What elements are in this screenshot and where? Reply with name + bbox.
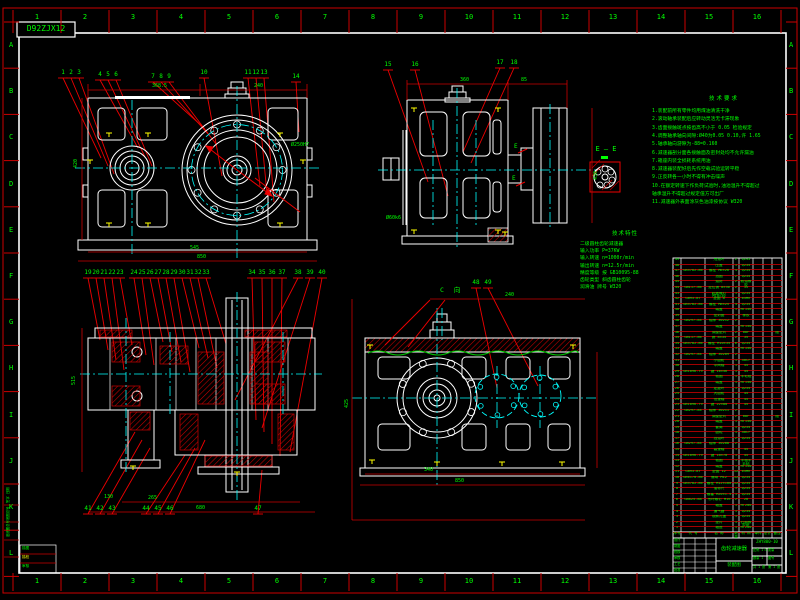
balloon-25: 25: [138, 270, 145, 276]
balloon-21: 21: [100, 270, 107, 276]
dim-label: 240: [505, 293, 514, 298]
zone-col-bottom: 16: [753, 578, 761, 585]
rear-dashed-circles: [475, 374, 561, 418]
balloon-47: 47: [254, 506, 261, 512]
titleblock-cell: 比例 1:5: [753, 549, 767, 552]
balloon-1: 1: [61, 70, 65, 76]
zone-row-right: D: [789, 181, 793, 188]
zone-col-top: 10: [465, 14, 473, 21]
dim-label: Ø250H7: [291, 143, 309, 148]
cad-sheet: D92ZJX12 技术要求 1.装配前所有零件均用煤油清洗干净2.滚动轴承装配后…: [0, 0, 800, 600]
note-line: 轴承温升不得超过规定值方可出厂: [652, 193, 724, 198]
spec-line: 润滑油 牌号 W320: [580, 286, 621, 291]
balloon-30: 30: [178, 270, 185, 276]
dim-label: Ø60k6: [386, 216, 401, 221]
balloon-39: 39: [306, 270, 313, 276]
zone-col-top: 5: [227, 14, 231, 21]
leader-line: [388, 70, 428, 182]
bolt-circle: [522, 385, 527, 390]
side-view: [383, 86, 567, 244]
title-block-type: 装配图: [716, 564, 752, 569]
titleblock-cell: 第 1 张: [768, 566, 780, 569]
balloon-13: 13: [260, 70, 267, 76]
titleblock-sig: 制图: [674, 545, 680, 548]
zone-row-left: D: [9, 181, 13, 188]
bom-header-cell: 备注: [772, 532, 782, 538]
leader-line: [100, 440, 142, 514]
note-line: 3.齿面接触斑点按齿高不小于 0.05 检验规定: [652, 127, 752, 132]
bom-header-cell: 代 号: [681, 532, 705, 538]
zone-col-bottom: 6: [275, 578, 279, 585]
notes-title: 技术要求: [650, 97, 798, 103]
zone-row-left: F: [9, 273, 13, 280]
dim-label: 515: [72, 376, 77, 385]
bolt-circle: [419, 429, 426, 436]
rear-centerlines: [352, 308, 596, 485]
zone-col-top: 12: [561, 14, 569, 21]
front-view: [78, 82, 317, 250]
leader-line: [96, 278, 108, 350]
dim-label: 425: [345, 399, 350, 408]
zone-col-top: 8: [371, 14, 375, 21]
leader-line: [108, 80, 145, 157]
bom-header-cell: 总计: [763, 532, 772, 538]
bolt-circle: [256, 206, 263, 213]
bolt-circle: [194, 189, 201, 196]
zone-col-bottom: 10: [465, 578, 473, 585]
zone-row-left: B: [9, 88, 13, 95]
balloon-49: 49: [484, 280, 491, 286]
balloon-28: 28: [162, 270, 169, 276]
balloon-41: 41: [84, 506, 91, 512]
titleblock-cell: 质量: [768, 549, 774, 552]
zone-col-top: 16: [753, 14, 761, 21]
titleblock-sig: 审核: [674, 557, 680, 560]
leader-line: [71, 78, 108, 166]
bom-header-row: 序号代 号名 称数量材 料单件总计备注: [673, 532, 782, 538]
balloon-5: 5: [106, 72, 110, 78]
bom-header-cell: 材 料: [739, 532, 753, 538]
section-hatch: [100, 330, 294, 466]
zone-col-bottom: 2: [83, 578, 87, 585]
zone-row-right: A: [789, 42, 793, 49]
balloon-4: 4: [98, 72, 102, 78]
e-mark-2: E: [512, 176, 516, 182]
bolt-circle: [478, 403, 483, 408]
e-mark-1: E: [514, 144, 518, 150]
dim-label: 680: [196, 506, 205, 511]
dimension-lines: [78, 80, 597, 520]
zone-col-top: 6: [275, 14, 279, 21]
dim-label: 85: [521, 78, 527, 83]
zone-row-right: B: [789, 88, 793, 95]
balloon-42: 42: [96, 506, 103, 512]
margin-side-row: 旧底图总号: [7, 520, 10, 537]
balloon-29: 29: [170, 270, 177, 276]
zone-col-top: 14: [657, 14, 665, 21]
leader-line: [88, 278, 100, 340]
bolt-circle: [468, 409, 475, 416]
balloon-10: 10: [200, 70, 207, 76]
leader-line: [158, 448, 195, 514]
bolt-circle: [537, 376, 542, 381]
specs-title: 技术特性: [580, 232, 670, 238]
bom-header-cell: 序号: [673, 532, 681, 538]
balloon-32: 32: [194, 270, 201, 276]
spec-line: 输入功率 P=37KW: [580, 250, 619, 255]
note-line: 6.减速器剖分面各接触面及密封处均不允许漏油: [652, 152, 754, 157]
balloon-34: 34: [248, 270, 255, 276]
zone-col-top: 11: [513, 14, 521, 21]
zone-col-bottom: 7: [323, 578, 327, 585]
zone-col-bottom: 9: [419, 578, 423, 585]
zone-row-right: I: [789, 412, 793, 419]
note-line: 9.正反转各一小时不得有冲击噪声: [652, 176, 725, 181]
balloon-15: 15: [384, 62, 391, 68]
zone-row-left: L: [9, 550, 13, 557]
balloon-20: 20: [92, 270, 99, 276]
zone-col-bottom: 3: [131, 578, 135, 585]
zone-col-bottom: 11: [513, 578, 521, 585]
note-line: 5.轴承轴向游隙为-88=0.160: [652, 143, 717, 148]
titleblock-sig: 校核: [674, 551, 680, 554]
spec-line: 齿轮类型 斜齿圆柱齿轮: [580, 279, 631, 284]
side-centerlines: [378, 88, 598, 250]
balloon-43: 43: [108, 506, 115, 512]
zone-row-right: H: [789, 365, 793, 372]
bolt-circle: [399, 380, 406, 387]
zone-row-right: E: [789, 227, 793, 234]
spec-line: 二级圆柱齿轮减速器: [580, 243, 623, 248]
balloon-33: 33: [202, 270, 209, 276]
margin-side-row: 签字 日期: [7, 487, 10, 503]
zone-col-bottom: 15: [705, 578, 713, 585]
spec-line: 输入转速 n=1000r/min: [580, 257, 634, 262]
balloon-6: 6: [114, 72, 118, 78]
spec-line: 输出转速 n=12.5r/min: [580, 265, 634, 270]
balloon-38: 38: [294, 270, 301, 276]
bolt-circle: [522, 403, 527, 408]
zone-col-top: 9: [419, 14, 423, 21]
balloon-40: 40: [318, 270, 325, 276]
note-line: 2.滚动轴承装配后应转动灵活无卡滞现象: [652, 118, 739, 123]
zone-row-right: J: [789, 458, 793, 465]
bom-header-cell: 单件: [753, 532, 763, 538]
leader-line: [190, 278, 208, 358]
balloon-31: 31: [186, 270, 193, 276]
titleblock-sig: 设计: [674, 539, 680, 542]
bolt-circle: [468, 380, 475, 387]
zone-col-top: 4: [179, 14, 183, 21]
balloon-23: 23: [116, 270, 123, 276]
bolt-circle: [511, 384, 516, 389]
dim-label: 265: [148, 496, 157, 501]
titleblock-cell: 图号: [768, 557, 774, 560]
balloon-36: 36: [268, 270, 275, 276]
balloon-9: 9: [167, 74, 171, 80]
zone-row-left: J: [9, 458, 13, 465]
bolt-circle: [538, 412, 543, 417]
bolt-circle: [511, 403, 516, 408]
balloon-24: 24: [130, 270, 137, 276]
dim-label: 360: [460, 78, 469, 83]
bolt-circle: [553, 384, 558, 389]
zone-col-bottom: 4: [179, 578, 183, 585]
zone-col-top: 1: [35, 14, 39, 21]
margin-side-row: 底图总号: [7, 506, 10, 520]
zone-row-right: K: [789, 504, 793, 511]
margin-corner-row: 审核: [22, 565, 29, 569]
dim-label: 430: [594, 171, 599, 180]
balloon-8: 8: [159, 74, 163, 80]
leader-line: [150, 278, 163, 342]
balloon-18: 18: [510, 60, 517, 66]
balloon-37: 37: [278, 270, 285, 276]
zone-col-bottom: 8: [371, 578, 375, 585]
balloon-35: 35: [258, 270, 265, 276]
bolt-circle: [448, 360, 455, 367]
balloon-11: 11: [244, 70, 251, 76]
section-ee-label: E — E: [588, 146, 624, 153]
titleblock-cell: 数量 1: [753, 557, 763, 560]
balloon-45: 45: [154, 506, 161, 512]
zone-col-bottom: 5: [227, 578, 231, 585]
zone-col-top: 7: [323, 14, 327, 21]
margin-corner-row: 描校: [22, 556, 29, 560]
balloon-17: 17: [496, 60, 503, 66]
rear-view: [360, 314, 585, 476]
zone-row-left: H: [9, 365, 13, 372]
balloon-16: 16: [411, 62, 418, 68]
zone-row-left: C: [9, 134, 13, 141]
dim-label: 420: [74, 159, 79, 168]
zone-col-bottom: 12: [561, 578, 569, 585]
balloon-48: 48: [472, 280, 479, 286]
zone-col-top: 15: [705, 14, 713, 21]
zone-row-left: E: [9, 227, 13, 234]
dim-label: 368.5: [152, 84, 167, 89]
leader-line: [290, 278, 322, 452]
leader-line: [169, 82, 216, 144]
balloon-46: 46: [166, 506, 173, 512]
dim-label: 850: [197, 255, 206, 260]
margin-corner-row: 描图: [22, 547, 29, 551]
leader-line: [116, 80, 152, 166]
titleblock-cell: 共 1 张: [753, 566, 765, 569]
title-block-name: 齿轮减速器: [716, 547, 752, 552]
dim-label: 850: [455, 479, 464, 484]
balloon-44: 44: [142, 506, 149, 512]
balloon-22: 22: [108, 270, 115, 276]
balloon-12: 12: [252, 70, 259, 76]
zone-col-bottom: 1: [35, 578, 39, 585]
zone-row-right: L: [789, 550, 793, 557]
balloon-27: 27: [154, 270, 161, 276]
zone-row-left: G: [9, 319, 13, 326]
titleblock-sig: 批准: [674, 569, 680, 572]
zone-col-top: 3: [131, 14, 135, 21]
zone-col-bottom: 14: [657, 578, 665, 585]
balloon-3: 3: [77, 70, 81, 76]
dim-label: 240: [254, 84, 263, 89]
titleblock-sig: 工艺: [674, 563, 680, 566]
title-block-code: ZHY800-10: [752, 540, 782, 544]
note-line: 1.装配前所有零件均用煤油清洗干净: [652, 110, 730, 115]
note-line: 11.减速器外表面涂灰色油漆按协议 W320: [652, 201, 742, 206]
bolt-circle: [478, 384, 483, 389]
zone-row-right: F: [789, 273, 793, 280]
bolt-circle: [419, 360, 426, 367]
note-line: 4.调整轴承轴向间隙:Ø40为0.05 0.10,许 1.65: [652, 135, 761, 140]
bolt-circle: [399, 409, 406, 416]
balloon-26: 26: [146, 270, 153, 276]
zone-row-left: A: [9, 42, 13, 49]
leader-line: [206, 278, 226, 344]
corner-code: D92ZJX12: [18, 25, 74, 33]
dim-label: 130: [104, 495, 113, 500]
note-line: 8.减速器装配好后先作空载试验运转平稳: [652, 168, 739, 173]
dim-label: 545: [190, 246, 199, 251]
margin-blocks: [4, 505, 56, 573]
bolt-circle: [553, 402, 558, 407]
zone-row-right: G: [789, 319, 793, 326]
spec-line: 精度等级 按 GB10095-88: [580, 272, 639, 277]
zone-row-left: I: [9, 412, 13, 419]
zone-row-right: C: [789, 134, 793, 141]
zone-col-bottom: 13: [609, 578, 617, 585]
note-line: 10.在额定转速下作负荷试验时,油池温升不得超过: [652, 185, 760, 190]
note-line: 7.箱座内装全损耗系统用油: [652, 160, 711, 165]
zone-col-top: 2: [83, 14, 87, 21]
balloon-7: 7: [151, 74, 155, 80]
bolt-circle: [448, 429, 455, 436]
zone-col-top: 13: [609, 14, 617, 21]
view-c-label: C 向: [440, 287, 463, 294]
bolt-circle: [495, 413, 500, 418]
dim-label: 340: [424, 468, 433, 473]
balloon-2: 2: [69, 70, 73, 76]
balloon-14: 14: [292, 74, 299, 80]
balloon-19: 19: [84, 270, 91, 276]
bom-header-cell: 名 称: [705, 532, 733, 538]
